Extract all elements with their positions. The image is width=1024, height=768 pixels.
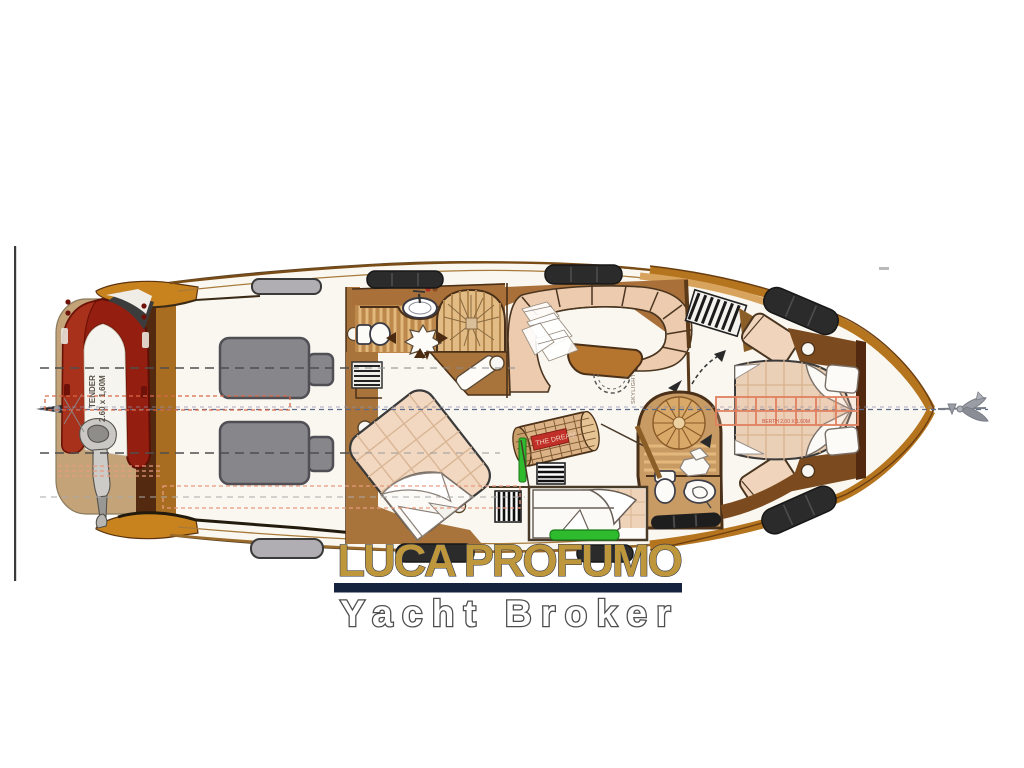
- svg-text:LUCA PROFUMO: LUCA PROFUMO: [337, 535, 681, 586]
- svg-text:BERTH 2.00 X 1.60M: BERTH 2.00 X 1.60M: [762, 419, 810, 425]
- svg-text:TENDER: TENDER: [88, 375, 97, 408]
- svg-text:2.60 x 1,60M: 2.60 x 1,60M: [98, 375, 107, 422]
- svg-text:Yacht Broker: Yacht Broker: [340, 593, 680, 634]
- svg-text:SKYLIGHT: SKYLIGHT: [631, 373, 637, 404]
